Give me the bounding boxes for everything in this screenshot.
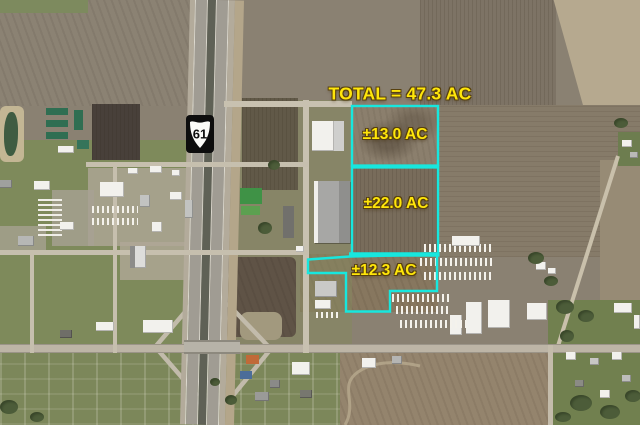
parcel-label-middle: ±22.0 AC: [364, 195, 429, 213]
route-shield-icon: 61: [186, 115, 214, 153]
route-number: 61: [193, 127, 207, 142]
parcel-label-south: ±12.3 AC: [352, 262, 417, 280]
aerial-site-map: TOTAL = 47.3 AC ±13.0 AC ±22.0 AC ±12.3 …: [0, 0, 640, 425]
parcel-label-north: ±13.0 AC: [363, 126, 428, 144]
us-route-61-shield: 61: [186, 115, 214, 153]
parcel-boundaries: [0, 0, 640, 425]
total-acreage-label: TOTAL = 47.3 AC: [329, 84, 472, 105]
